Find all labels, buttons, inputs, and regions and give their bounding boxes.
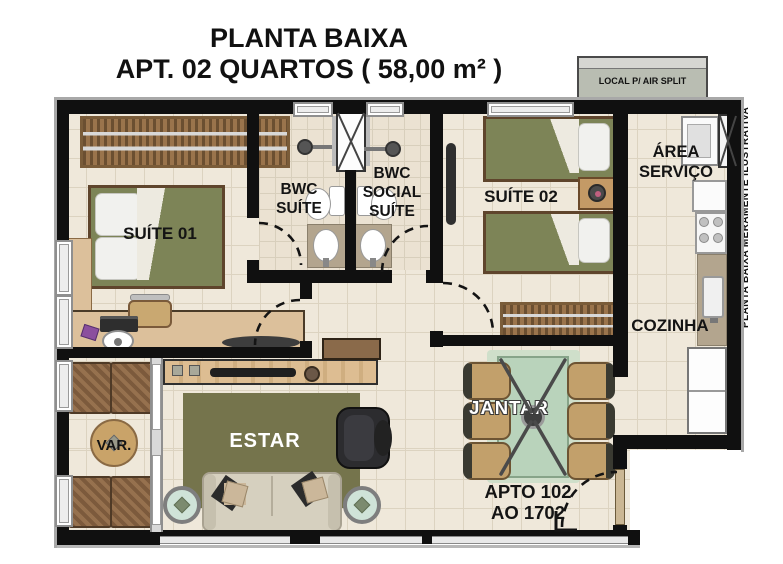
hall-cabinet bbox=[322, 338, 381, 360]
room-label-jantar: JANTAR bbox=[453, 397, 565, 419]
pillow bbox=[578, 123, 610, 171]
dining-chair bbox=[463, 442, 511, 480]
air-split-ledge bbox=[579, 58, 706, 69]
varanda-chair bbox=[68, 476, 112, 528]
area-servico-line2: SERVIÇO bbox=[630, 162, 722, 182]
bwc-social-line2: SOCIAL bbox=[352, 183, 432, 202]
wall bbox=[259, 270, 392, 283]
bed-suite02-a bbox=[483, 116, 621, 182]
varanda-chair bbox=[68, 362, 112, 414]
wall bbox=[247, 100, 259, 218]
entrance-note-line1: APTO 102 bbox=[468, 481, 588, 502]
sliding-door-panel bbox=[152, 455, 161, 525]
fridge-divider bbox=[689, 390, 725, 392]
sliding-door-panel bbox=[152, 364, 161, 430]
room-label-area-servico: ÁREA SERVIÇO bbox=[630, 142, 722, 182]
wall bbox=[57, 530, 160, 545]
kitchen-sink bbox=[702, 276, 724, 318]
dining-chair bbox=[463, 362, 511, 400]
lamp-center bbox=[595, 191, 601, 197]
room-label-bwc-social: BWC SOCIAL SUÍTE bbox=[352, 164, 432, 221]
desk-appliance-knob bbox=[114, 338, 122, 346]
bwc-social-line3: SUÍTE bbox=[352, 202, 432, 221]
entrance-note-line2: AO 1702 bbox=[468, 502, 588, 523]
faucet bbox=[370, 258, 376, 267]
floor-plan: PLANTA BAIXA APT. 02 QUARTOS ( 58,00 m² … bbox=[0, 0, 783, 564]
plan-title-line1: PLANTA BAIXA bbox=[0, 23, 618, 54]
wall bbox=[613, 447, 627, 469]
wall bbox=[247, 260, 259, 283]
sofa-seat-line bbox=[271, 476, 273, 516]
rack-knob bbox=[189, 365, 200, 376]
bed-sheet-fold bbox=[541, 214, 579, 265]
window bbox=[55, 475, 73, 527]
dining-chair bbox=[567, 442, 615, 480]
wall bbox=[613, 525, 627, 535]
sofa-armrest bbox=[328, 474, 340, 530]
dining-chair bbox=[567, 402, 615, 440]
sill bbox=[57, 545, 640, 548]
entrance-door bbox=[615, 469, 625, 525]
room-label-suite01: SUÍTE 01 bbox=[100, 224, 220, 244]
bed-suite02-b bbox=[483, 211, 621, 274]
window-band bbox=[160, 536, 628, 544]
sofa-armrest bbox=[204, 474, 216, 530]
wall bbox=[613, 435, 741, 449]
plan-title-line2: APT. 02 QUARTOS ( 58,00 m² ) bbox=[0, 54, 618, 85]
varanda-chair bbox=[110, 476, 154, 528]
shower-head bbox=[297, 139, 313, 155]
burner bbox=[713, 233, 723, 243]
wall bbox=[422, 534, 432, 544]
window bbox=[293, 102, 333, 117]
shaft-rail bbox=[366, 116, 370, 166]
window bbox=[55, 240, 73, 296]
plan-title: PLANTA BAIXA APT. 02 QUARTOS ( 58,00 m² … bbox=[0, 23, 618, 85]
dining-chair bbox=[567, 362, 615, 400]
burner bbox=[713, 217, 723, 227]
wall bbox=[430, 335, 617, 346]
wall bbox=[300, 283, 312, 299]
shaft-box bbox=[336, 111, 366, 172]
laundry-sink bbox=[692, 180, 727, 212]
wall bbox=[727, 100, 741, 450]
room-label-estar: ESTAR bbox=[205, 430, 325, 453]
room-label-cozinha: COZINHA bbox=[626, 316, 714, 336]
tv bbox=[210, 368, 296, 377]
faucet bbox=[323, 258, 329, 267]
bwc-social-line1: BWC bbox=[352, 164, 432, 183]
wall bbox=[290, 534, 320, 544]
window bbox=[55, 295, 73, 349]
burner bbox=[699, 217, 709, 227]
bed-sheet-fold bbox=[541, 119, 579, 173]
shower-head bbox=[385, 141, 401, 157]
room-label-varanda: VAR. bbox=[88, 437, 140, 454]
burner bbox=[699, 233, 709, 243]
room-label-bwc-suite: BWC SUÍTE bbox=[260, 180, 338, 218]
outer-trim-right bbox=[741, 97, 744, 452]
bwc-suite-line1: BWC bbox=[260, 180, 338, 199]
pillow bbox=[578, 218, 610, 263]
entrance-note: APTO 102 AO 1702 bbox=[468, 481, 588, 523]
wall bbox=[628, 530, 640, 545]
wall bbox=[57, 347, 312, 358]
window bbox=[55, 360, 73, 412]
air-split-label: LOCAL P/ AIR SPLIT bbox=[579, 76, 706, 86]
room-label-suite02: SUÍTE 02 bbox=[468, 187, 574, 207]
armchair-seat bbox=[344, 415, 374, 461]
varanda-chair bbox=[110, 362, 154, 414]
bwc-suite-line2: SUÍTE bbox=[260, 199, 338, 218]
curtain bbox=[446, 143, 456, 225]
rack-knob bbox=[172, 365, 183, 376]
speaker bbox=[304, 366, 320, 382]
window bbox=[366, 102, 404, 117]
window bbox=[487, 102, 574, 117]
armchair-side bbox=[374, 420, 392, 456]
area-servico-line1: ÁREA bbox=[630, 142, 722, 162]
